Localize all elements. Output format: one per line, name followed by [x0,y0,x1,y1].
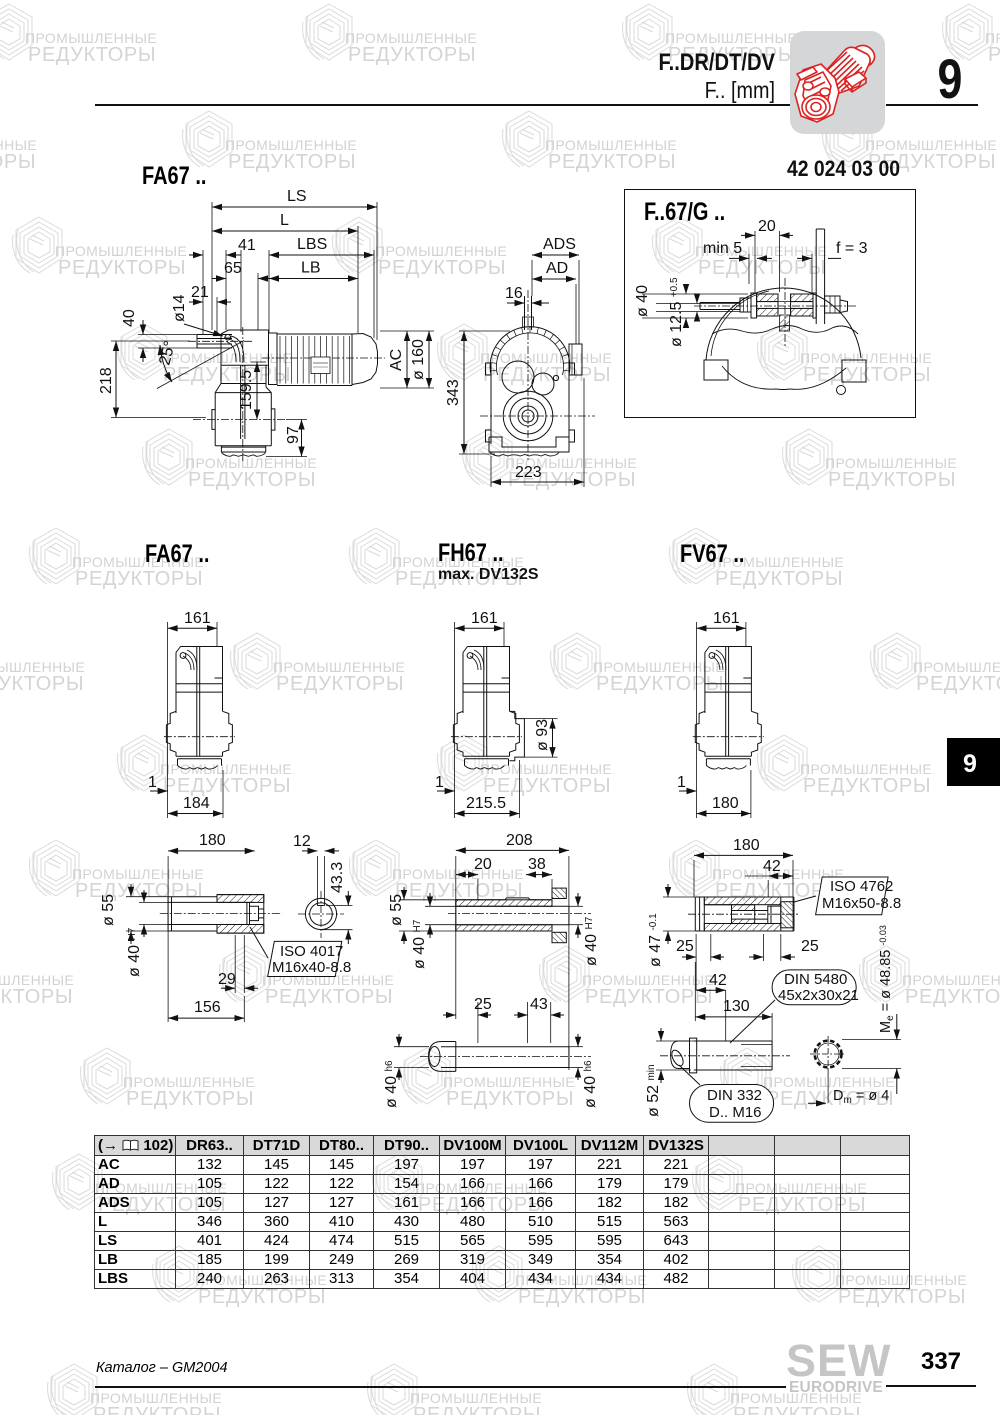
svg-text:ø 40 H7: ø 40 H7 [126,927,143,977]
svg-text:20: 20 [758,218,776,235]
svg-text:M16x50-8.8: M16x50-8.8 [822,895,901,912]
svg-text:38: 38 [528,856,546,873]
svg-text:20: 20 [474,856,492,873]
svg-text:184: 184 [183,795,210,812]
svg-text:D.. M16: D.. M16 [709,1104,762,1121]
svg-text:ISO 4017: ISO 4017 [280,943,343,960]
svg-text:25: 25 [801,938,819,955]
svg-text:AC: AC [388,349,405,371]
svg-text:40: 40 [121,309,138,327]
svg-text:25: 25 [676,938,694,955]
svg-text:ø 40 H7: ø 40 H7 [583,916,600,966]
svg-text:156: 156 [194,999,221,1016]
svg-text:ISO 4762: ISO 4762 [830,878,893,895]
svg-text:130: 130 [723,998,750,1015]
svg-text:ø 47 -0.1: ø 47 -0.1 [647,913,664,967]
svg-text:21: 21 [191,284,209,301]
svg-text:ø 40 h6: ø 40 h6 [582,1060,599,1108]
svg-text:1: 1 [677,774,686,791]
svg-text:25°: 25° [156,339,179,367]
svg-text:LS: LS [287,188,307,205]
svg-text:ø 55: ø 55 [388,894,405,926]
svg-text:ø 55: ø 55 [100,894,117,926]
svg-text:223: 223 [515,464,542,481]
svg-text:1: 1 [435,774,444,791]
svg-text:1: 1 [148,774,157,791]
svg-text:Me = ø 48.85 -0.03: Me = ø 48.85 -0.03 [878,925,896,1033]
svg-text:ADS: ADS [543,236,576,253]
svg-text:180: 180 [712,795,739,812]
svg-text:ø 52 min: ø 52 min [645,1064,662,1117]
svg-text:42: 42 [709,972,727,989]
svg-text:L: L [280,212,289,229]
svg-text:25: 25 [474,996,492,1013]
svg-text:29: 29 [218,971,236,988]
svg-text:343: 343 [445,379,462,406]
svg-text:ø 12.5 +0.5: ø 12.5 +0.5 [668,277,685,347]
svg-text:65: 65 [224,260,242,277]
svg-text:ø 93: ø 93 [534,719,551,751]
svg-text:45x2x30x21: 45x2x30x21 [778,987,859,1004]
svg-text:f = 3: f = 3 [836,240,868,257]
svg-text:16: 16 [505,285,523,302]
svg-text:215.5: 215.5 [466,795,506,812]
svg-text:42: 42 [763,858,781,875]
svg-text:12: 12 [293,833,311,850]
svg-text:161: 161 [184,610,211,627]
svg-text:ø 160: ø 160 [410,339,427,380]
svg-text:M16x40-8.8: M16x40-8.8 [272,959,351,976]
svg-text:43.3: 43.3 [329,862,346,893]
svg-text:208: 208 [506,832,533,849]
svg-text:DIN 5480: DIN 5480 [784,971,847,988]
svg-text:ø 40: ø 40 [634,285,651,317]
svg-text:97: 97 [285,426,302,444]
svg-text:180: 180 [199,832,226,849]
svg-text:161: 161 [471,610,498,627]
svg-text:LB: LB [301,260,321,277]
svg-text:ø 40 H7: ø 40 H7 [411,919,428,969]
svg-text:180: 180 [733,837,760,854]
svg-text:DIN 332: DIN 332 [707,1087,762,1104]
svg-text:161: 161 [713,610,740,627]
svg-text:min 5: min 5 [703,240,742,257]
svg-text:Dm = ø 4: Dm = ø 4 [833,1088,889,1106]
svg-text:AD: AD [546,260,568,277]
svg-text:LBS: LBS [297,236,327,253]
svg-text:ø14: ø14 [171,294,188,322]
svg-text:43: 43 [530,996,548,1013]
svg-text:218: 218 [98,367,115,394]
